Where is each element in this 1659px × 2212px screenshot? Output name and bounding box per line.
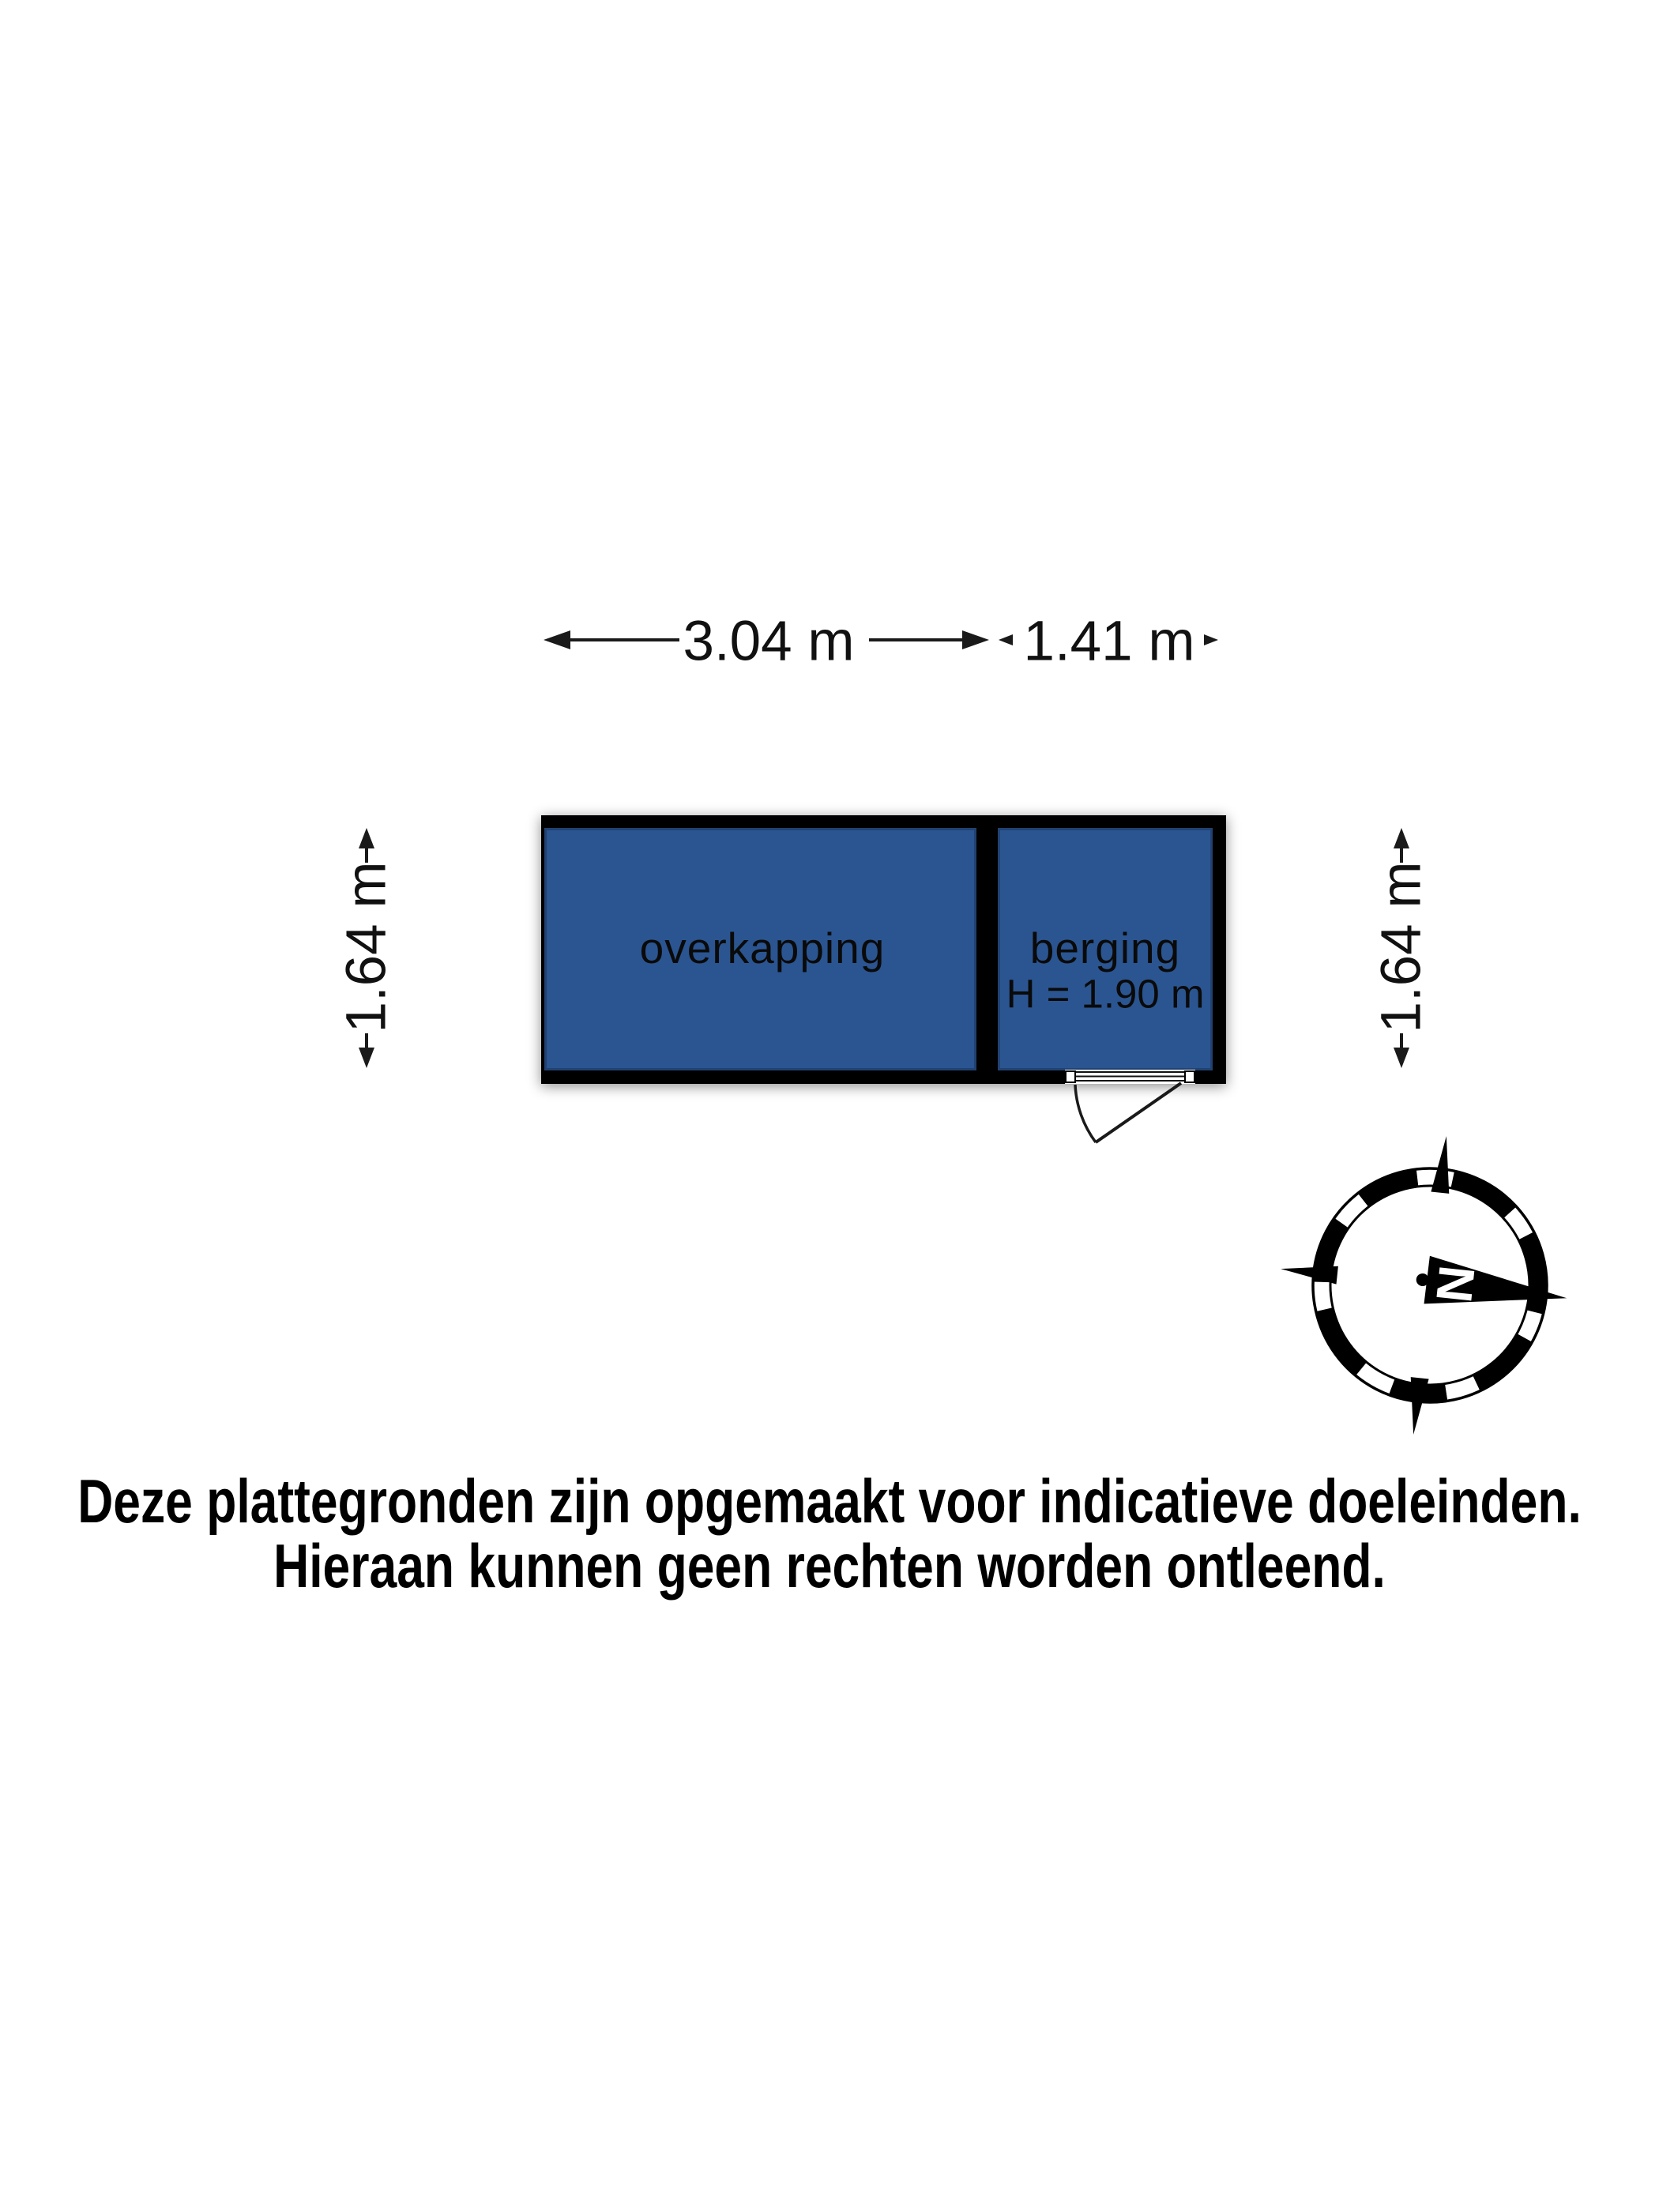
floorplan-page: 3.04 m 1.41 m 1.64 m 1.64 m overkapping …	[0, 0, 1659, 2212]
dimension-label-berging-width: 1.41 m	[1023, 610, 1194, 674]
disclaimer-line-2: Hieraan kunnen geen rechten worden ontle…	[77, 1534, 1582, 1599]
door-swing	[1075, 1083, 1181, 1142]
compass: N	[1265, 1120, 1582, 1449]
dimension-label-overkapping-width: 3.04 m	[683, 610, 854, 674]
annotations-overlay: N	[0, 0, 1659, 2212]
disclaimer: Deze plattegronden zijn opgemaakt voor i…	[77, 1469, 1582, 1599]
room-label-berging: berging	[1030, 923, 1180, 973]
room-label-berging-height: H = 1.90 m	[1006, 971, 1205, 1018]
door-post-right	[1184, 1070, 1195, 1083]
compass-spikes	[1265, 1120, 1455, 1435]
door-threshold-stripes	[1075, 1071, 1185, 1082]
dimension-label-depth-right: 1.64 m	[1370, 861, 1434, 1033]
north-needle	[1424, 1256, 1570, 1319]
compass-ring-segments	[1311, 1166, 1548, 1404]
door-post-left	[1065, 1070, 1076, 1083]
north-label: N	[1425, 1263, 1485, 1305]
compass-inner-ring	[1321, 1176, 1540, 1395]
room-label-overkapping: overkapping	[640, 923, 886, 973]
dimension-label-depth-left: 1.64 m	[335, 861, 399, 1033]
compass-outer-ring	[1301, 1157, 1558, 1413]
disclaimer-line-1: Deze plattegronden zijn opgemaakt voor i…	[77, 1469, 1582, 1534]
door-opening	[1065, 1070, 1195, 1084]
compass-pivot	[1416, 1273, 1430, 1287]
floorplan: overkapping berging H = 1.90 m	[541, 815, 1226, 1084]
